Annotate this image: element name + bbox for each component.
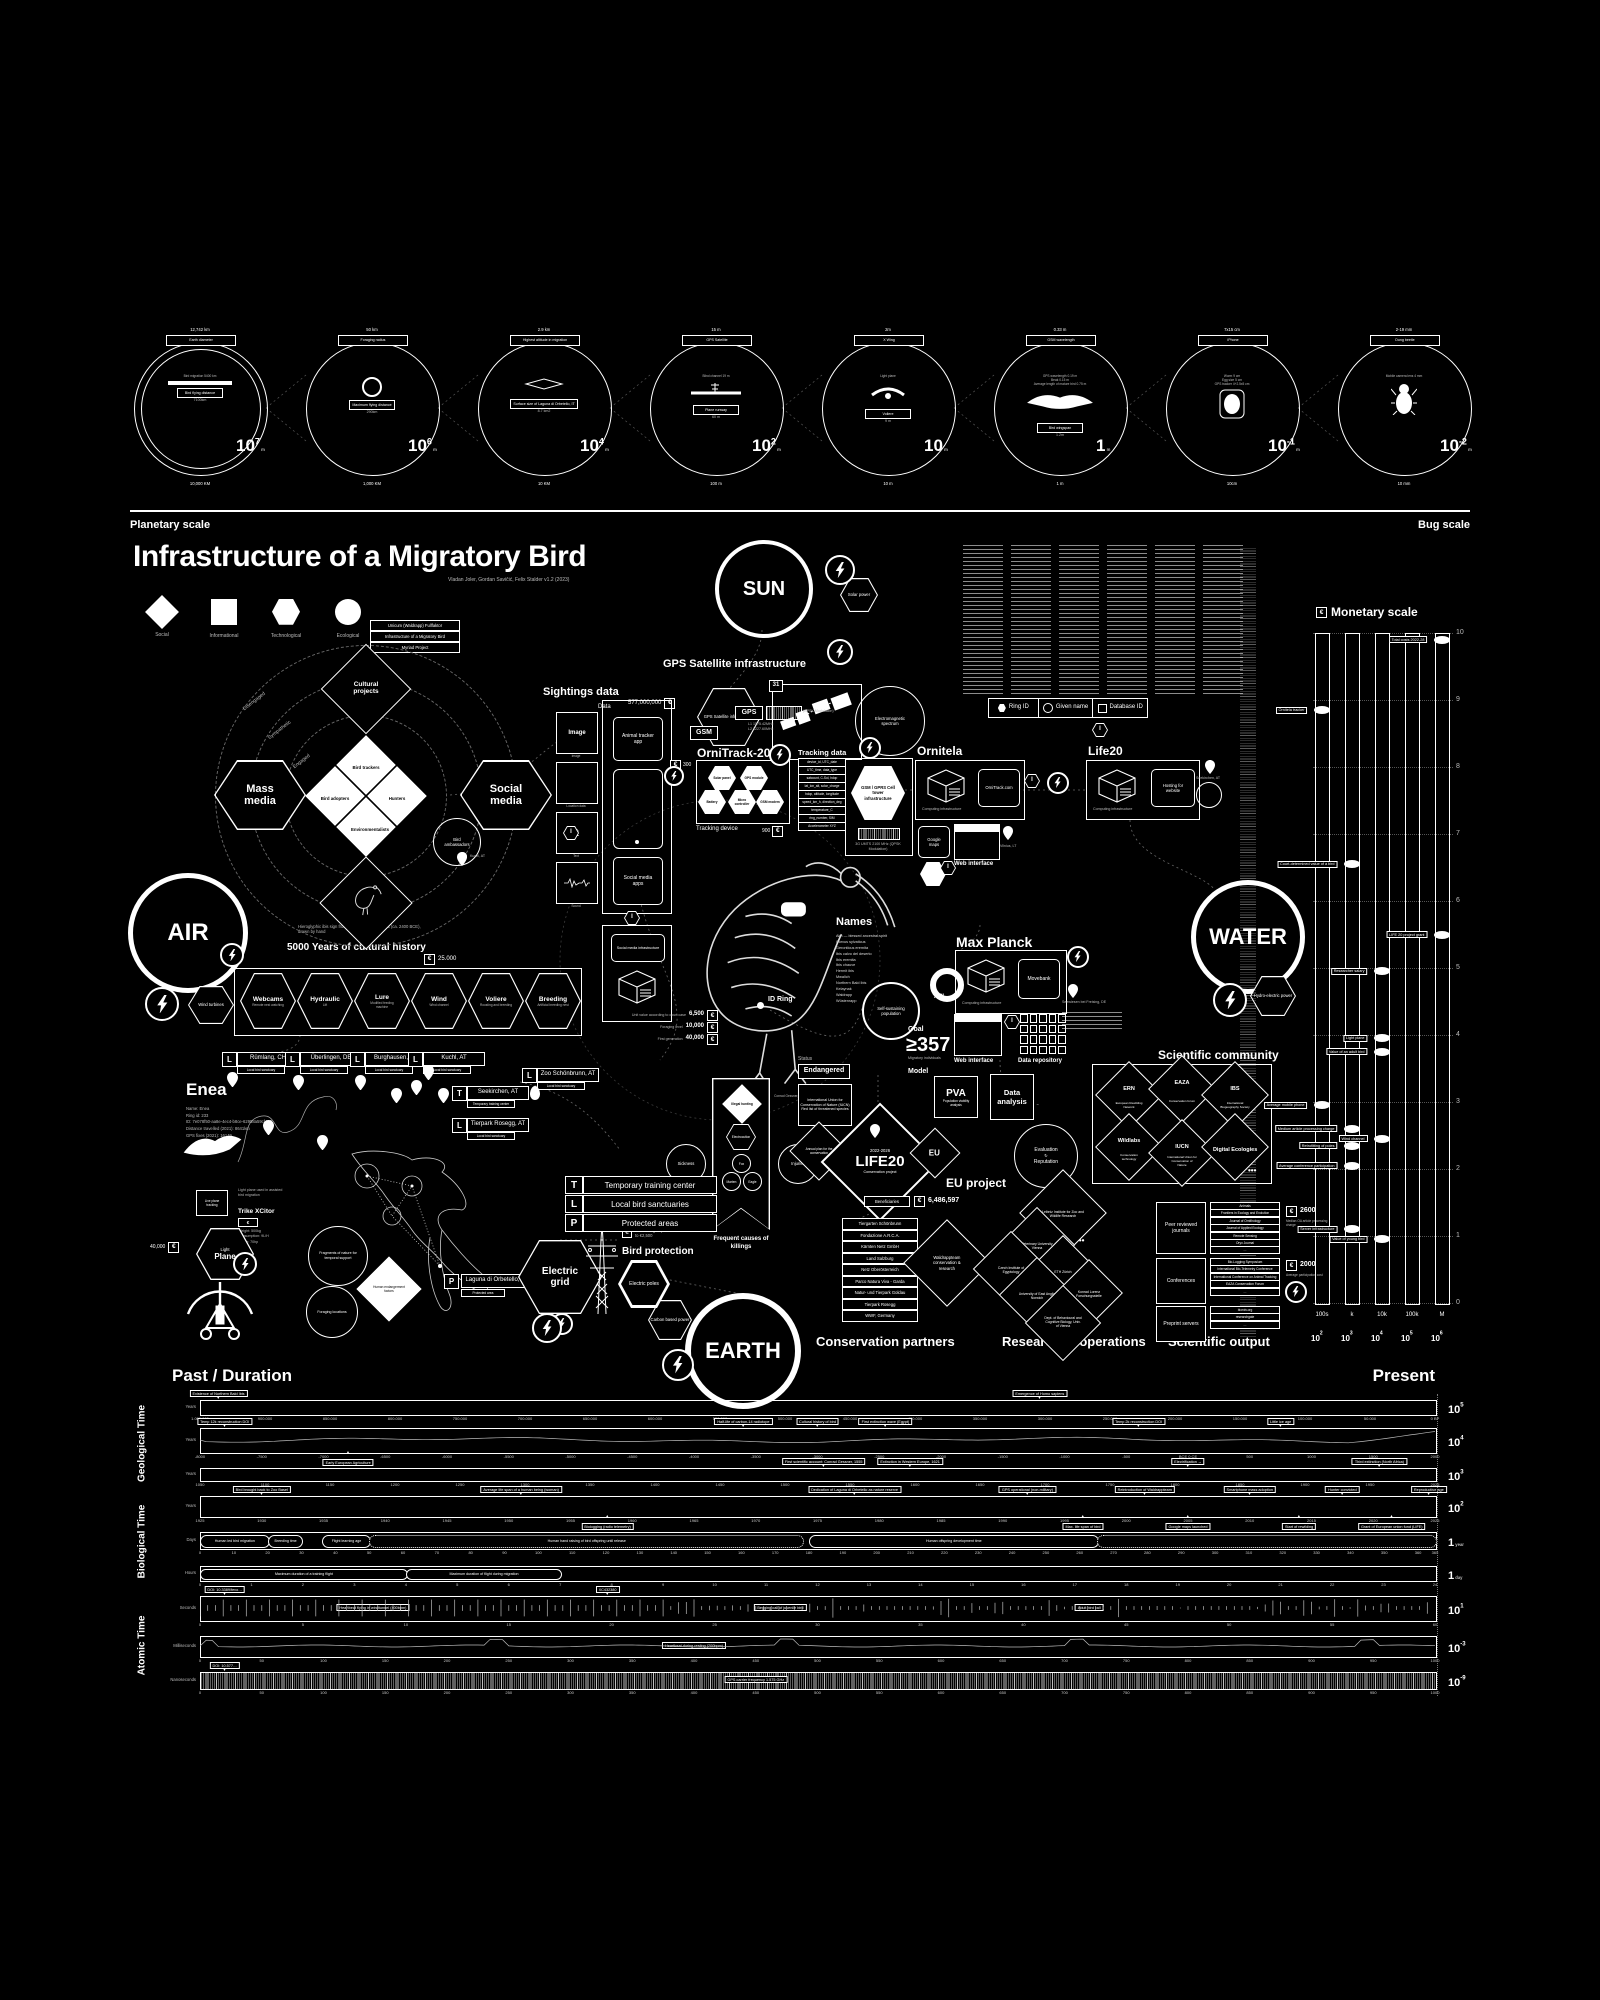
timeline-unit: 10-9: [1448, 1673, 1508, 1687]
scale-top-label: Earth diameter: [166, 335, 236, 346]
repo-cell: [1030, 1014, 1038, 1023]
timeline-tick: 1965: [690, 1518, 699, 1523]
monetary-marker-label: Server infrastructure: [1297, 1226, 1337, 1233]
movebank-box: Movebank: [1018, 959, 1060, 999]
monetary-power: 103: [1341, 1328, 1367, 1340]
timeline-marker-arrow: ▲: [1297, 1515, 1300, 1519]
scale-top-label: Foraging radius: [338, 335, 408, 346]
timeline-tick: 100.000: [1298, 1416, 1312, 1421]
life20-circle: [1196, 782, 1222, 808]
timeline-tick: 1930: [257, 1518, 266, 1523]
timeline-segment: Breeding time: [268, 1535, 304, 1548]
server-cube-icon: [617, 970, 657, 1009]
server-cube-icon: [966, 959, 1006, 998]
repo-cell: [1058, 1046, 1066, 1055]
map-pin-icon: [391, 1088, 402, 1103]
site-name: Seekirchen, AT: [467, 1086, 529, 1100]
timeline-tick: 350: [629, 1690, 636, 1695]
monetary-power: 105: [1401, 1328, 1427, 1340]
timeline-tick: 800.000: [388, 1416, 402, 1421]
timeline-tick: 550: [876, 1690, 883, 1695]
timeline-tick: 50: [367, 1550, 371, 1555]
repo-cell: [1049, 1025, 1057, 1034]
monetary-marker-label: Value of young bird: [1329, 1236, 1367, 1243]
name-column: [1011, 545, 1051, 695]
tracking-data-fields: device_id, UTC_dateUTC_time, data_typesa…: [798, 758, 846, 838]
timeline-tick: 60: [401, 1550, 405, 1555]
timeline-tick: 290: [1178, 1550, 1185, 1555]
scale-power: 1 m: [1096, 436, 1166, 456]
timeline-tick: 15: [970, 1582, 974, 1587]
monetary-axis-tick: 9: [1456, 696, 1474, 704]
map-circle-fragments: Fragments of nature for temporal support: [308, 1226, 368, 1286]
timeline-tick: 600: [938, 1690, 945, 1695]
timeline-marker-arrow: ▼: [1427, 1493, 1430, 1497]
scale-bottom-value: 10 mm: [1344, 480, 1464, 488]
output-group-box: Peer reviewed journals: [1156, 1202, 1206, 1254]
map-pin-icon: [1205, 760, 1215, 774]
monetary-power: 104: [1371, 1328, 1397, 1340]
timeline-tick: -6000: [442, 1454, 452, 1459]
id-legend: Ring ID Given name Database ID: [988, 698, 1148, 718]
beneficiaries-box: Beneficiaries: [864, 1196, 910, 1207]
ornitela-box: Computing infrastructure OrniTrack.com: [915, 760, 1025, 820]
monetary-heading-row: €Monetary scale: [1316, 604, 1476, 620]
site-legend-tag: L: [565, 1195, 583, 1213]
scale-bottom-value: 10 KM: [484, 480, 604, 488]
culture-hex: BreedingArtificial breeding nest: [525, 973, 581, 1029]
scale-top-label: GSM wavelength: [1026, 335, 1096, 346]
monetary-axis-tick: 2: [1456, 1165, 1474, 1173]
timeline-marker-arrow: ▼: [1377, 1465, 1380, 1469]
lightning-icon: [825, 555, 855, 585]
lightning-icon: [827, 639, 853, 665]
timeline-tick: 140: [670, 1550, 677, 1555]
timeline-tick: 45: [1124, 1622, 1128, 1627]
scale-bottom-value: 10cm: [1172, 480, 1292, 488]
scale-band-inner: 12,742 kmEarth diameterBird migration 54…: [0, 300, 1600, 515]
timeline-marker-label: GPS carrier frequency 1.575 GHz: [724, 1676, 787, 1683]
timeline-tick: 350: [629, 1658, 636, 1663]
timeline-tick: 250: [505, 1658, 512, 1663]
timeline-tick: 230: [975, 1550, 982, 1555]
timeline-tick: 900.000: [258, 1416, 272, 1421]
sun-node: SUN: [715, 540, 813, 638]
scale-axis-left-label: Planetary scale: [130, 519, 210, 531]
protected-area-box: P Laguna di Orbetello, IT Protected area: [444, 1274, 531, 1297]
timeline-tick: 100: [320, 1690, 327, 1695]
timeline-tick: 700: [1061, 1658, 1068, 1663]
timeline-tick: 2025: [1431, 1518, 1440, 1523]
life20-pin-label: Seekirchen, AT: [1196, 776, 1220, 781]
sighting-label: Sound: [556, 903, 596, 909]
timeline-tick: 55: [1330, 1622, 1334, 1627]
name-column: [963, 545, 1003, 695]
timeline-tick: 1200: [391, 1482, 400, 1487]
repo-cell: [1030, 1025, 1038, 1034]
timeline-tick: 1750: [1106, 1482, 1115, 1487]
repo-cell: [1030, 1035, 1038, 1044]
monetary-axis-tick: 3: [1456, 1098, 1474, 1106]
cost-label: Unit value according to court case: [632, 1013, 686, 1018]
tracker-part-hex: GPS module: [740, 766, 768, 790]
scale-axis-right-label: Bug scale: [1270, 519, 1470, 531]
status-note: International Union for Conservation of …: [798, 1084, 852, 1126]
timeline-tick: 1500: [781, 1482, 790, 1487]
cost-label: First generation: [658, 1037, 683, 1042]
timeline-tick: 2010: [1245, 1518, 1254, 1523]
scicomm-more: •••: [1248, 1166, 1256, 1175]
timeline-bar: [200, 1400, 1437, 1416]
timeline-tick: 500.000: [778, 1416, 792, 1421]
monetary-axis-tick: 7: [1456, 830, 1474, 838]
timeline-tick: 700.000: [518, 1416, 532, 1421]
repo-cell: [1039, 1014, 1047, 1023]
earth-node: EARTH: [685, 1293, 801, 1409]
timeline-tick: -7500: [257, 1454, 267, 1459]
timeline-tick: 1350: [586, 1482, 595, 1487]
timeline-tick: 70: [435, 1550, 439, 1555]
gps-modulation-barcode: [766, 706, 802, 720]
life20-infra-label: Computing infrastructure: [1093, 807, 1132, 812]
timeline-segment: Human led bird migration: [200, 1535, 270, 1548]
lightning-icon: [1067, 946, 1089, 968]
euro-icon: €: [707, 1010, 718, 1021]
conservation-partners-list: Tiergarten SchönbrunnFondazione A.R.C.A.…: [842, 1218, 918, 1328]
timeline-row-label: Nanoseconds: [148, 1677, 196, 1683]
eu-project-label: EU project: [946, 1176, 1006, 1190]
timeline-row-label: Seconds: [148, 1605, 196, 1611]
timeline-unit: 10-3: [1448, 1639, 1508, 1653]
ornitela-web-label: Web interface: [954, 861, 993, 869]
legend-label: Social: [155, 632, 169, 639]
culture-hex: WebcamsRemote nest watching: [240, 973, 296, 1029]
api-label: API: [934, 994, 944, 1002]
timeline-tick: 1925: [196, 1518, 205, 1523]
timeline-present-label: Present: [1355, 1366, 1435, 1386]
data-repository-label: Data repository: [1018, 1058, 1062, 1066]
data-repository-grid: [1020, 1014, 1066, 1054]
timeline-marker-label: Start of rewilding: [1282, 1523, 1316, 1530]
timeline-tick: 360: [1415, 1550, 1422, 1555]
site-legend-label: Temporary training center: [583, 1176, 717, 1194]
partner-box: Natur- und Tierpark Goldau: [842, 1287, 918, 1299]
repo-cell: [1039, 1035, 1047, 1044]
site-legend: TTemporary training centerLLocal bird sa…: [565, 1176, 715, 1230]
google-maps-box: Google maps: [918, 826, 950, 858]
timeline-marker-arrow: ▲: [1186, 1515, 1189, 1519]
scale-inner: GPS wavelength 0.19 mBeak 0.15 mAverage …: [1008, 374, 1112, 438]
timeline-marker-arrow: ▼: [1025, 1493, 1028, 1497]
monetary-marker: [1434, 931, 1450, 939]
timeline-tick: 4: [405, 1582, 407, 1587]
timeline-tick: 1955: [566, 1518, 575, 1523]
timeline-tick: 0: [199, 1690, 201, 1695]
site-legend-label: Protected areas: [583, 1214, 717, 1232]
culture-cost: €25.000: [424, 954, 456, 965]
site-sub: Local bird sanctuary: [300, 1066, 348, 1074]
scale-top-value: 2.9 km: [484, 326, 604, 334]
scale-inner: Mobile camera lens 4 mm: [1352, 374, 1456, 423]
scale-top-label: X Wing: [854, 335, 924, 346]
timeline-tick: 120: [603, 1550, 610, 1555]
timeline-tick: 320: [1279, 1550, 1286, 1555]
bird-name: Akh — blessed ancestral spirit: [836, 934, 887, 940]
timeline-marker-arrow: ▼: [853, 1493, 856, 1497]
timeline-tick: 240: [1009, 1550, 1016, 1555]
tracking-field: Accelerometer XYZ: [798, 822, 846, 831]
gps-l2: L2 1227.60MHz: [748, 727, 773, 732]
bird-protection-heading: Bird protection: [622, 1246, 694, 1257]
monetary-word: 100s: [1307, 1312, 1337, 1320]
life20-heading: Life20: [1088, 744, 1123, 758]
timeline-tick: 14: [918, 1582, 922, 1587]
timeline-tick: 250: [1043, 1550, 1050, 1555]
timeline-tick: 1975: [813, 1518, 822, 1523]
timeline-tick: -5000: [565, 1454, 575, 1459]
timeline-tick: 400: [691, 1658, 698, 1663]
timeline-marker-label: Grant of European union fund (LIFE): [1358, 1523, 1426, 1530]
scale-power: 106 m: [408, 436, 478, 456]
monetary-marker: [1314, 706, 1330, 714]
monetary-bar: [1315, 633, 1330, 1305]
timeline-tick: 1970: [751, 1518, 760, 1523]
timeline-marker-label: Biologging (radio telemetry): [581, 1523, 633, 1530]
partner-box: Fondazione A.R.C.A.: [842, 1230, 918, 1242]
map-pin-icon: [293, 1075, 304, 1090]
maxplanck-pin-label: Seewiesen bei Freising, DE: [1062, 1000, 1118, 1005]
timeline-tick: 300: [1212, 1550, 1219, 1555]
data-analysis-box: Data analysis: [990, 1074, 1034, 1120]
map-pin-icon: [263, 1120, 274, 1135]
timeline-tick: 5: [456, 1582, 458, 1587]
legend-label: Informational: [210, 633, 239, 640]
timeline-tick: 1600: [911, 1482, 920, 1487]
sighting-wave-box: [556, 862, 598, 904]
scale-top-value: 0.33 m: [1000, 326, 1120, 334]
timeline-tick: 300: [567, 1658, 574, 1663]
timeline-tick: 1935: [319, 1518, 328, 1523]
site-sub: Local bird sanctuary: [537, 1082, 585, 1090]
site-tag: L: [452, 1118, 467, 1133]
timeline-tick: 30: [299, 1550, 303, 1555]
page-title: Infrastructure of a Migratory Bird: [133, 540, 586, 574]
timeline-tick: 200: [444, 1690, 451, 1695]
scale-power: 107 m: [236, 436, 306, 456]
scale-inner: Worm 9 cmEgg size 5 cmGPS tracker 4+2.5x…: [1180, 374, 1284, 427]
scale-top-label: Highest altitude in migration: [510, 335, 580, 346]
timeline-tick: 200: [873, 1550, 880, 1555]
timeline-group-label: Atomic Time: [137, 1602, 148, 1690]
timeline-tick: 20: [1227, 1582, 1231, 1587]
scale-top-value: 2-19 mm: [1344, 326, 1464, 334]
output-item: …: [1210, 1321, 1280, 1329]
live-plane-tracking-box: Live plane tracking: [196, 1190, 228, 1216]
monetary-axis-tick: 5: [1456, 964, 1474, 972]
timeline-segment: Human offspring development time: [809, 1535, 1099, 1548]
timeline-segment: [1097, 1535, 1437, 1548]
site-tag: L: [522, 1068, 537, 1083]
goal-sub: Migratory individuals: [908, 1056, 941, 1061]
timeline-tick: 150.000: [1233, 1416, 1247, 1421]
repo-cell: [1039, 1025, 1047, 1034]
monetary-word: 100k: [1397, 1312, 1427, 1320]
timeline-tick: 850.000: [323, 1416, 337, 1421]
timeline-tick: -4500: [627, 1454, 637, 1459]
tracker-part-hex: Battery: [698, 790, 726, 814]
timeline-tick: 23: [1381, 1582, 1385, 1587]
gps-l1: L1 1575.42MHz: [748, 722, 773, 727]
plane-model: Trike XCitor: [238, 1208, 274, 1215]
phone-icon: [613, 769, 663, 849]
timeline-marker-label: Max. life span of bird: [1062, 1523, 1103, 1530]
ornitrack-heading: OrniTrack-20: [697, 746, 770, 760]
timeline-tick: 350.000: [973, 1416, 987, 1421]
timeline-tick: 160: [738, 1550, 745, 1555]
timeline-tick: 18: [1124, 1582, 1128, 1587]
timeline-tick: 16: [1021, 1582, 1025, 1587]
cost-value: 6,500: [689, 1011, 704, 1019]
monetary-marker-label: Value of an adult bird: [1326, 1048, 1368, 1055]
timeline-marker-arrow: ▼: [260, 1493, 263, 1497]
timeline-unit: 105: [1448, 1400, 1508, 1414]
timeline-group-label: Geological Time: [137, 1400, 148, 1488]
eu-grant: €6,486,597: [914, 1196, 959, 1207]
timeline-tick: 500: [814, 1658, 821, 1663]
name-column: [1155, 545, 1195, 695]
kill-circle-fox: Fox: [732, 1154, 751, 1173]
timeline-unit: 104: [1448, 1433, 1508, 1447]
timeline-unit: 103: [1448, 1467, 1508, 1481]
plane-badge: €: [238, 1218, 258, 1227]
timeline-tick: 20: [265, 1550, 269, 1555]
scale-power: 102 m: [752, 436, 822, 456]
timeline-tick: 700: [1061, 1690, 1068, 1695]
tracker-parts: Solar panelGPS moduleBatteryMicro contro…: [696, 760, 788, 822]
timeline-row-label: Years: [148, 1471, 196, 1477]
project-box: Infrastructure of a Migratory Bird: [370, 631, 460, 642]
sighting-label: Image: [556, 753, 596, 759]
timeline-tick: 180: [806, 1550, 813, 1555]
tracker-part-hex: Micro controller: [728, 790, 756, 814]
timeline-row-label: Days: [148, 1537, 196, 1543]
site-legend-label: Local bird sanctuaries: [583, 1195, 717, 1213]
lightning-icon: [662, 1349, 694, 1381]
name-column: [1203, 545, 1243, 695]
monetary-marker: [1374, 1048, 1390, 1056]
monetary-marker: [1344, 1162, 1360, 1170]
repo-cell: [1049, 1046, 1057, 1055]
timeline-unit: 1 year: [1448, 1533, 1508, 1547]
scale-bottom-value: 10 m: [828, 480, 948, 488]
timeline-tick: 10: [232, 1550, 236, 1555]
lightning-icon: [1047, 772, 1069, 794]
monetary-marker: [1434, 636, 1450, 644]
output-group-box: Conferences: [1156, 1258, 1206, 1304]
timeline-tick: 1000: [1431, 1690, 1440, 1695]
timeline-tick: 1950: [1366, 1482, 1375, 1487]
poster-canvas: Planetary scale Bug scale Infrastructure…: [0, 0, 1600, 2000]
timeline-tick: 750: [1123, 1690, 1130, 1695]
map-pin-icon: [317, 1135, 328, 1150]
timeline-tick: 35: [918, 1622, 922, 1627]
repo-cell: [1058, 1025, 1066, 1034]
monetary-marker-label: Average conference participation: [1276, 1162, 1337, 1169]
timeline-tick: 100: [535, 1550, 542, 1555]
ornitela-pin-label: Vilnius, LT: [1000, 844, 1016, 849]
legend-label: Technological: [271, 633, 301, 640]
timeline-tick: -5500: [504, 1454, 514, 1459]
gps-heading: GPS Satellite infrastructure: [663, 658, 806, 670]
timeline-tick: 650.000: [583, 1416, 597, 1421]
cell-barcode: [858, 828, 900, 840]
plane-cost: 40,000€: [150, 1242, 179, 1253]
timeline-tick: 1150: [326, 1482, 335, 1487]
timeline-tick: 0 BP: [1431, 1416, 1440, 1421]
euro-icon: €: [707, 1022, 718, 1033]
site-legend-tag: P: [565, 1214, 583, 1232]
lightning-icon: [145, 987, 179, 1021]
timeline-tick: 150: [382, 1658, 389, 1663]
timeline-tick: 330: [1313, 1550, 1320, 1555]
gps-box: GPS: [735, 706, 763, 720]
ornitela-backend: OrniTrack.com: [978, 769, 1020, 807]
timeline-tick: 250: [505, 1690, 512, 1695]
scale-power: 10-2 m: [1440, 436, 1510, 456]
timeline-marker-arrow: ▼: [1186, 1465, 1189, 1469]
timeline-tick: 850: [1246, 1690, 1253, 1695]
lightning-icon: [769, 744, 791, 766]
timeline-tick: 310: [1246, 1550, 1253, 1555]
monetary-marker: [1374, 1135, 1390, 1143]
repo-cell: [1039, 1046, 1047, 1055]
culture-hex: VoliereRoosting and breeding: [468, 973, 524, 1029]
sighting-label: Text: [556, 853, 596, 859]
scale-top-label: GPS Satellite: [682, 335, 752, 346]
culture-hexes: WebcamsRemote nest watchingHydraulicLift…: [234, 968, 584, 1034]
timeline-tick: 2: [302, 1582, 304, 1587]
id-ring-dot: [757, 1002, 764, 1009]
status-value: Endangered: [798, 1064, 850, 1079]
timeline-tick: 220: [941, 1550, 948, 1555]
repo-cell: [1030, 1046, 1038, 1055]
timeline-tick: 450: [752, 1690, 759, 1695]
timeline-marker-arrow: ▼: [908, 1465, 911, 1469]
status-label: Status: [798, 1056, 812, 1063]
timeline-tick: 17: [1073, 1582, 1077, 1587]
timeline-tick: 21: [1278, 1582, 1282, 1587]
tracking-data-heading: Tracking data: [798, 748, 846, 757]
timeline-marker-arrow: ▼: [519, 1493, 522, 1497]
timeline-tick: 50: [260, 1658, 264, 1663]
monetary-marker-label: Light plane: [1343, 1035, 1368, 1042]
timeline-tick: 40: [1021, 1622, 1025, 1627]
scale-top-value: 7x15 cm: [1172, 326, 1292, 334]
monetary-marker-label: Court-determined value of a bird: [1277, 861, 1337, 868]
legend-diamond-icon: Social: [140, 590, 184, 648]
output-item: …: [1210, 1288, 1280, 1296]
timeline-tick: 22: [1330, 1582, 1334, 1587]
timeline-tick: 150: [704, 1550, 711, 1555]
map-pin-icon: [423, 1065, 434, 1080]
gps-modulation-label: (BPSK Modulation): [803, 709, 834, 714]
timeline-marker-arrow: ▲: [606, 1515, 609, 1519]
partner-box: Tiergarten Schönbrunn: [842, 1218, 918, 1230]
monetary-marker-label: Medium article processing charge: [1275, 1125, 1338, 1132]
timeline-tick: 450.000: [843, 1416, 857, 1421]
monetary-word: M: [1427, 1312, 1457, 1320]
timeline-tick: 950: [1370, 1658, 1377, 1663]
